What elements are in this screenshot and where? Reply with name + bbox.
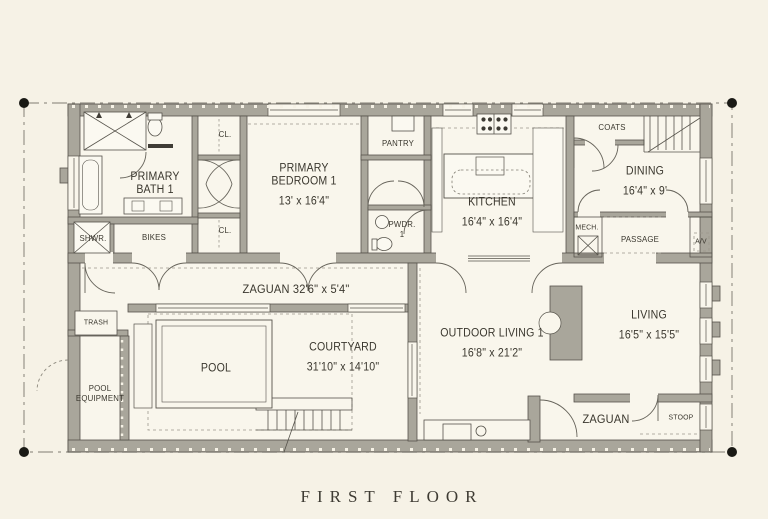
floorplan-drawing [0, 0, 768, 519]
trash-room-outline [75, 311, 117, 335]
stove-icon [477, 114, 511, 134]
fireplace-niche [539, 312, 561, 334]
outdoor-counter [424, 420, 530, 440]
floorplan-sheet: PRIMARY BATH 1 SHWR. BIKES CL. CL. PRIMA… [0, 0, 768, 519]
exterior-gate-arc [37, 360, 68, 391]
sheet-title: FIRST FLOOR [301, 487, 484, 507]
